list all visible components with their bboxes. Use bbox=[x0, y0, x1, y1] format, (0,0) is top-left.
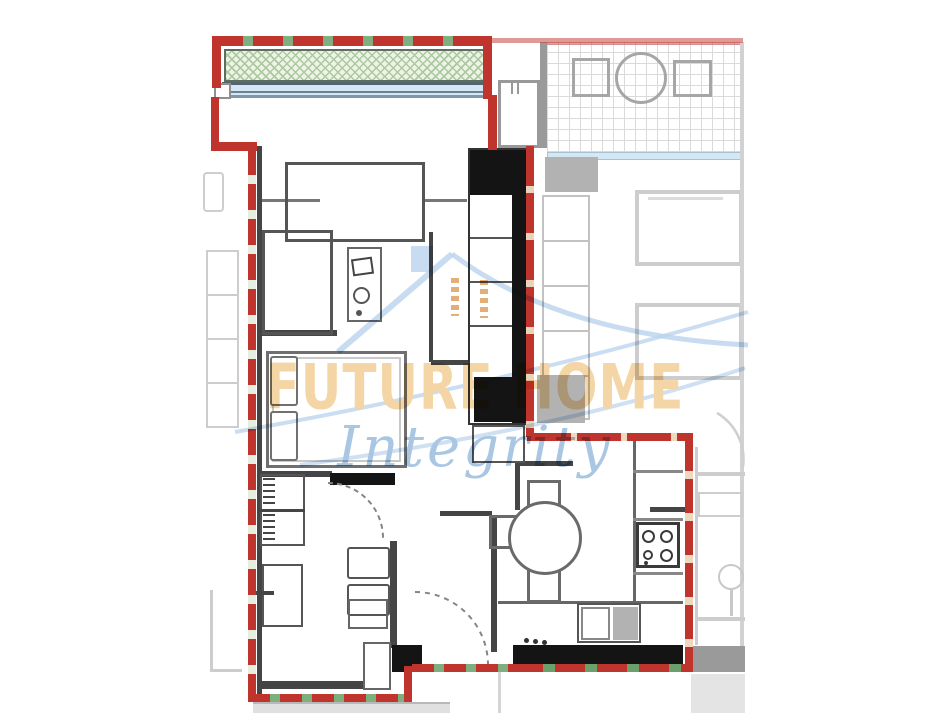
boundary-top bbox=[213, 36, 492, 46]
boundary-left-upper bbox=[211, 97, 219, 146]
boundary-balcony-left bbox=[212, 36, 221, 88]
neighbor-door-arc bbox=[717, 413, 744, 467]
boundary-balcony-right bbox=[483, 36, 492, 99]
entrance-door-arc bbox=[415, 592, 488, 665]
boundary-bottom-left bbox=[248, 694, 412, 702]
boundary-kitchen-top bbox=[527, 433, 693, 441]
boundary-threshold bbox=[412, 664, 513, 672]
boundary-bottom-right bbox=[513, 664, 693, 672]
boundary-right-lower bbox=[685, 437, 693, 672]
bathroom-door-arc bbox=[328, 483, 383, 538]
plan-arcs-layer bbox=[0, 0, 950, 713]
boundary-left-main bbox=[248, 149, 256, 698]
boundary-step-bottom bbox=[404, 666, 412, 702]
boundary-column-right bbox=[526, 146, 534, 437]
floor-plan-canvas: FUTURE HOME Integrity bbox=[0, 0, 950, 713]
boundary-balcony-right-step bbox=[488, 95, 497, 150]
